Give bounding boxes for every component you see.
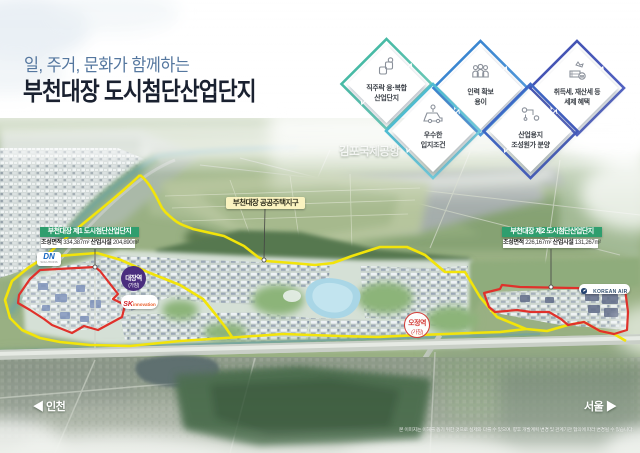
svg-text:세제 혜택: 세제 혜택	[564, 97, 589, 106]
svg-text:조성원가 분양: 조성원가 분양	[511, 140, 550, 149]
svg-text:취득세, 재산세 등: 취득세, 재산세 등	[554, 87, 601, 96]
svg-text:산업용지: 산업용지	[518, 130, 543, 139]
svg-text:우수한: 우수한	[424, 130, 443, 139]
svg-text:직주락 융·복합: 직주락 융·복합	[366, 83, 407, 92]
svg-text:인력 확보: 인력 확보	[467, 87, 494, 96]
svg-text:산업단지: 산업단지	[374, 93, 399, 102]
svg-text:입지조건: 입지조건	[421, 140, 446, 149]
svg-text:용이: 용이	[474, 97, 486, 106]
